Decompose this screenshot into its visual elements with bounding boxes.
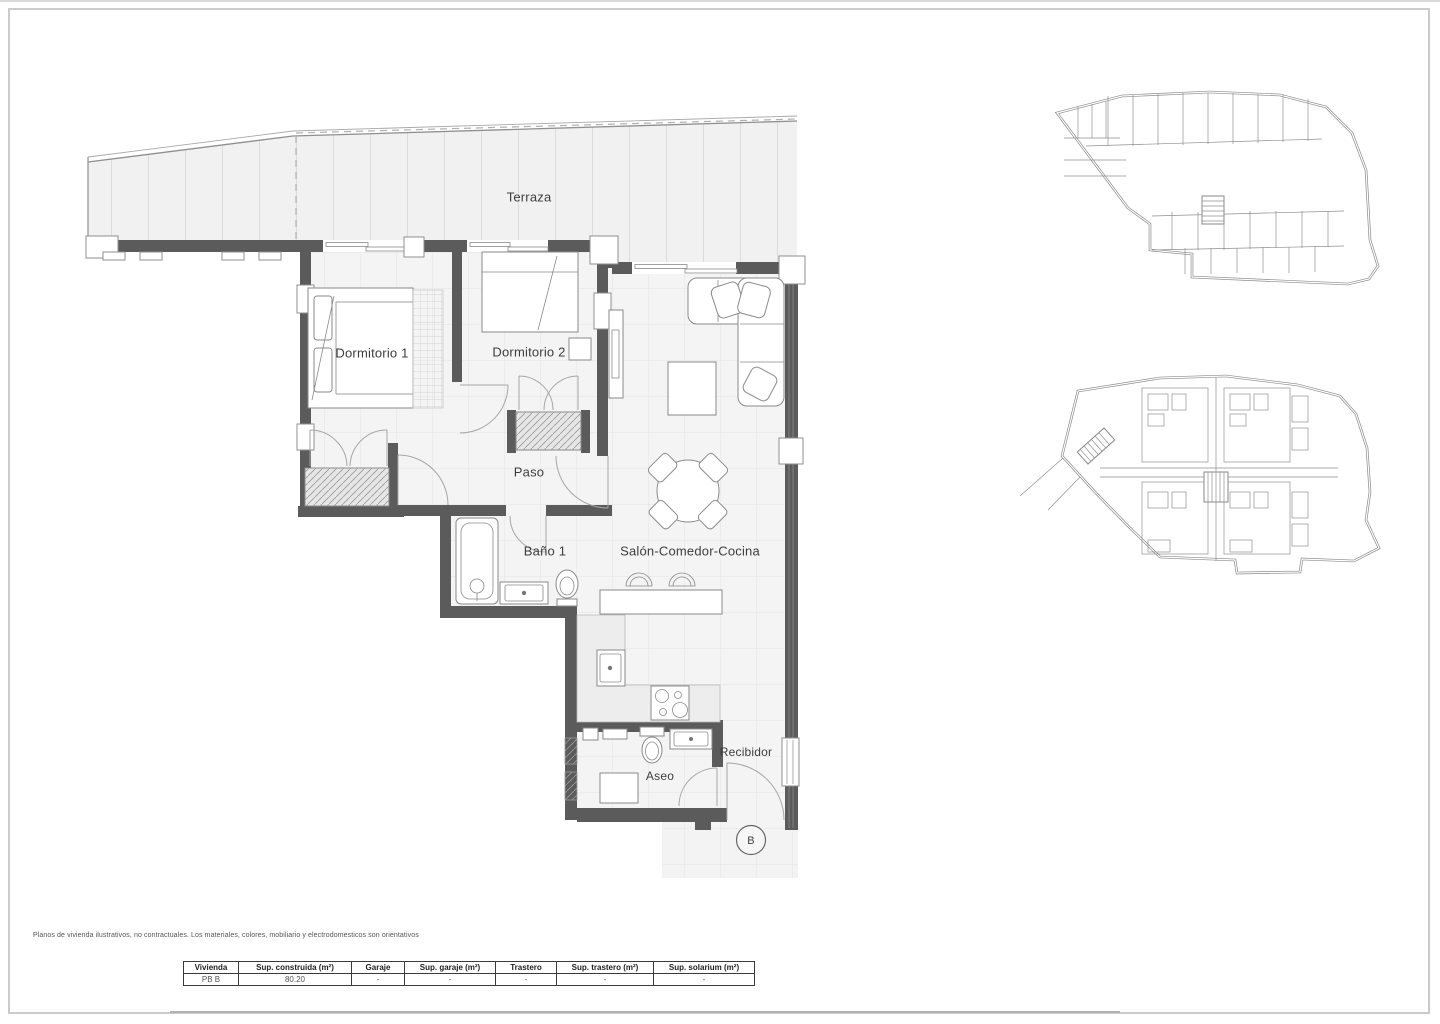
room-label-aseo: Aseo: [646, 769, 674, 783]
col-vivienda: Vivienda: [184, 962, 239, 974]
col-trastero: Trastero: [496, 962, 557, 974]
table-row: PB B 80.20 - - - - -: [184, 974, 755, 986]
col-sup-solarium: Sup. solarium (m²): [654, 962, 755, 974]
col-sup-trastero: Sup. trastero (m²): [557, 962, 654, 974]
cell-trastero: -: [496, 974, 557, 986]
cell-sup-construida: 80.20: [239, 974, 352, 986]
room-label-dormitorio-1: Dormitorio 1: [335, 346, 408, 361]
cell-garaje: -: [352, 974, 405, 986]
cell-sup-solarium: -: [654, 974, 755, 986]
entry-landing: [662, 822, 798, 878]
room-label-terraza: Terraza: [507, 190, 552, 205]
floorplan-drawing: [0, 0, 1440, 1024]
terrace-ticks: [103, 252, 281, 260]
main-floor-plan: [86, 116, 805, 878]
room-label-paso: Paso: [514, 465, 544, 480]
surface-summary-table: Vivienda Sup. construida (m²) Garaje Sup…: [183, 961, 755, 986]
cell-sup-trastero: -: [557, 974, 654, 986]
key-plan-garage: [1057, 92, 1378, 284]
room-label-dormitorio-2: Dormitorio 2: [492, 345, 565, 360]
footer-rule: [170, 1011, 1120, 1013]
room-label-salon: Salón-Comedor-Cocina: [620, 544, 760, 559]
cell-sup-garaje: -: [405, 974, 496, 986]
col-sup-garaje: Sup. garaje (m²): [405, 962, 496, 974]
table-header-row: Vivienda Sup. construida (m²) Garaje Sup…: [184, 962, 755, 974]
key-plan-apartments: [1020, 376, 1379, 573]
room-label-bano-1: Baño 1: [524, 544, 566, 559]
col-garaje: Garaje: [352, 962, 405, 974]
cell-vivienda: PB B: [184, 974, 239, 986]
disclaimer-text: Planos de vivienda ilustrativos, no cont…: [33, 932, 419, 939]
room-label-recibidor: Recibidor: [720, 745, 773, 759]
col-sup-construida: Sup. construida (m²): [239, 962, 352, 974]
unit-marker-label: B: [747, 835, 755, 847]
